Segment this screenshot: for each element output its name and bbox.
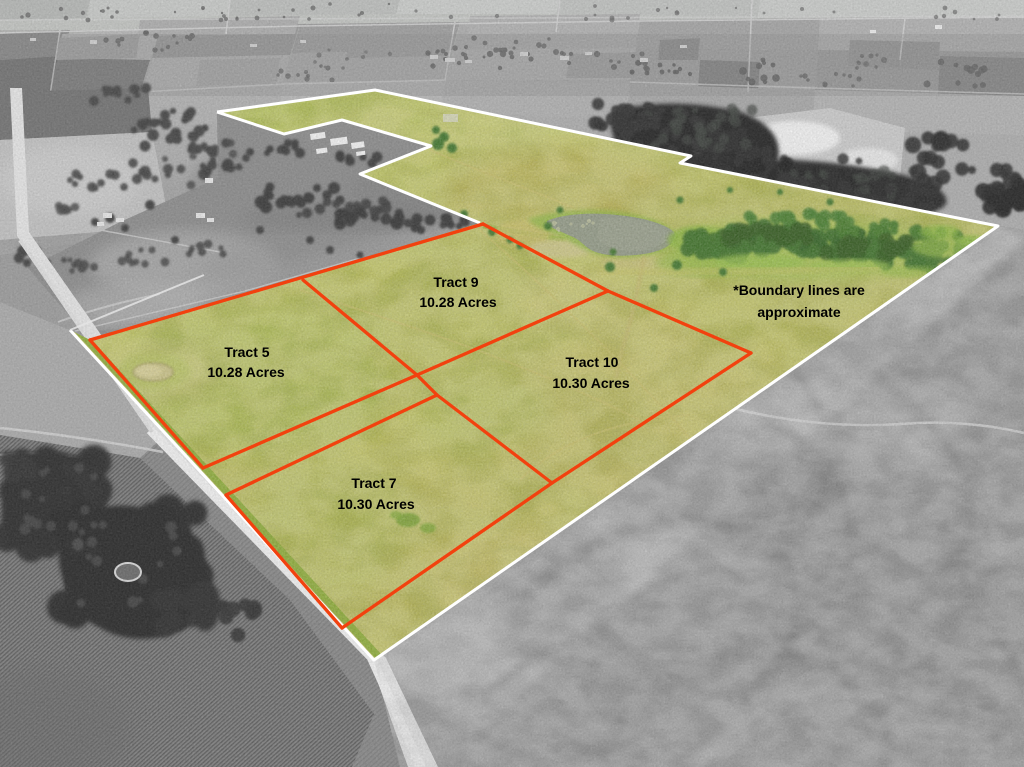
svg-text:approximate: approximate — [757, 304, 840, 320]
svg-text:Tract 10: Tract 10 — [566, 354, 619, 370]
svg-text:Tract 5: Tract 5 — [224, 344, 269, 360]
svg-text:Tract 7: Tract 7 — [351, 475, 396, 491]
svg-text:10.28 Acres: 10.28 Acres — [419, 294, 497, 310]
svg-text:10.30 Acres: 10.30 Acres — [552, 375, 630, 391]
svg-text:Tract 9: Tract 9 — [433, 274, 478, 290]
svg-text:*Boundary lines are: *Boundary lines are — [733, 282, 865, 298]
svg-text:10.28 Acres: 10.28 Acres — [207, 364, 285, 380]
svg-text:10.30 Acres: 10.30 Acres — [337, 496, 415, 512]
